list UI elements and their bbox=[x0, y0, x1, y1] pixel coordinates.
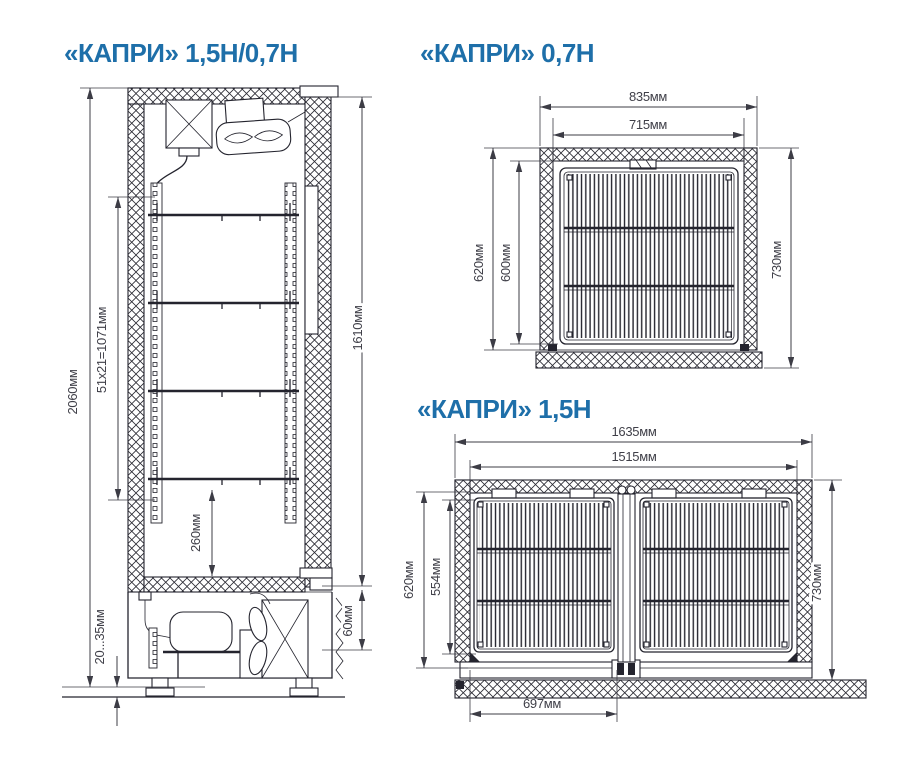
center-latch bbox=[612, 660, 640, 678]
dim-07-outer-depth: 620мм bbox=[471, 244, 486, 282]
diagram-kapri-15: 1635мм 1515мм 620мм 554мм 730мм 697мм bbox=[401, 424, 866, 722]
wire-grille-right bbox=[640, 498, 792, 652]
front-band-15 bbox=[455, 680, 866, 698]
fan-unit bbox=[214, 96, 292, 155]
dim-07-inner-width: 715мм bbox=[629, 117, 667, 132]
diagram-kapri-side: 2060мм 51х21=1071мм 260мм 20...35мм 1610… bbox=[62, 86, 372, 726]
door-handle bbox=[305, 186, 318, 334]
front-band-07 bbox=[536, 352, 762, 368]
drawing-canvas: «КАПРИ» 1,5Н/0,7Н «КАПРИ» 0,7Н «КАПРИ» 1… bbox=[0, 0, 900, 762]
diagram-kapri-07: 835мм 715мм 620мм 600мм 730мм bbox=[471, 89, 799, 368]
dim-bottom-clearance: 260мм bbox=[188, 514, 203, 552]
wire-grille-07 bbox=[560, 168, 738, 344]
dim-door-height: 1610мм bbox=[350, 305, 365, 350]
dim-15-overall-depth: 730мм bbox=[809, 564, 824, 602]
condenser-fan bbox=[246, 593, 308, 678]
technical-drawing-page: «КАПРИ» 1,5Н/0,7Н «КАПРИ» 0,7Н «КАПРИ» 1… bbox=[0, 0, 900, 762]
glass-door bbox=[300, 86, 338, 590]
title-view-07: «КАПРИ» 0,7Н bbox=[420, 38, 594, 68]
door-track bbox=[460, 660, 812, 678]
dim-leg-range: 20...35мм bbox=[92, 609, 107, 664]
dim-15-outer-depth: 620мм bbox=[401, 561, 416, 599]
shelves bbox=[148, 203, 299, 485]
title-view-15: «КАПРИ» 1,5Н bbox=[417, 394, 591, 424]
machinery-compartment bbox=[128, 592, 343, 679]
dim-07-outer-width: 835мм bbox=[629, 89, 667, 104]
dim-shelf-pitch: 51х21=1071мм bbox=[94, 307, 109, 394]
compressor bbox=[170, 612, 232, 652]
dim-plinth-gap: 60мм bbox=[340, 605, 355, 636]
dim-15-inner-depth: 554мм bbox=[428, 558, 443, 596]
dim-15-inner-width: 1515мм bbox=[612, 449, 657, 464]
dim-07-overall-depth: 730мм bbox=[769, 241, 784, 279]
dim-15-door-width: 697мм bbox=[523, 696, 561, 711]
dim-15-outer-width: 1635мм bbox=[612, 424, 657, 439]
title-side-view: «КАПРИ» 1,5Н/0,7Н bbox=[64, 38, 298, 68]
dim-07-inner-depth: 600мм bbox=[498, 244, 513, 282]
wire-grille-left bbox=[474, 498, 614, 652]
dim-overall-height: 2060мм bbox=[65, 369, 80, 414]
center-mullion bbox=[618, 486, 635, 662]
